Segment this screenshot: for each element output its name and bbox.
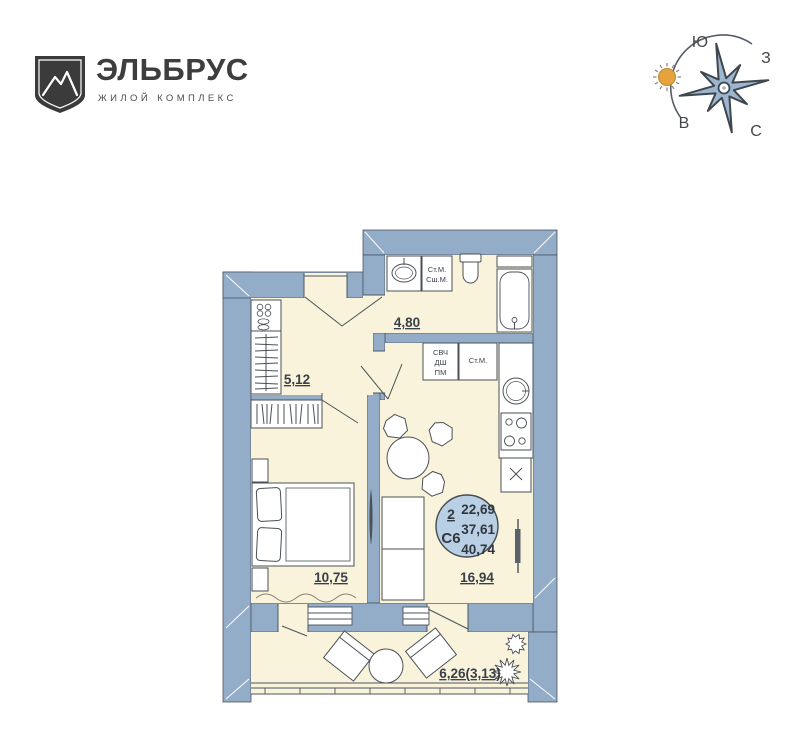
plan-canvas: Ю З В С (0, 0, 799, 752)
dining-table (387, 437, 429, 479)
area-label-bedroom: 10,75 (314, 570, 348, 585)
area-label-hall: 5,12 (284, 372, 310, 387)
shoe-cabinet (251, 300, 281, 331)
compass-label-east: В (679, 115, 690, 132)
area-label-bathroom: 4,80 (394, 315, 420, 330)
floor-plan-page: ЭЛЬБРУС ЖИЛОЙ КОМПЛЕКС Ю З В С (0, 0, 799, 752)
bed (252, 483, 354, 566)
compass-label-west: З (761, 50, 771, 67)
bedroom-balcony-door-opening (278, 604, 308, 632)
kitchen-sink (503, 378, 529, 404)
bath-shelf (497, 256, 532, 267)
bedroom-window (308, 607, 352, 625)
badge-unit: С6 (441, 530, 460, 547)
nightstand (252, 568, 268, 591)
bathroom-door-opening (363, 295, 385, 333)
oven-label: ДШ (435, 358, 447, 367)
kitchen-door-opening (373, 351, 385, 393)
entrance-opening (304, 273, 347, 298)
balcony-table (369, 649, 403, 683)
compass-label-north: С (750, 123, 762, 140)
living-window (403, 607, 429, 625)
bedroom-wardrobe (251, 400, 322, 428)
dryer-label: Сш.М. (426, 275, 448, 284)
microwave-label: СВЧ (433, 348, 448, 357)
compass-rose: Ю З В С (653, 34, 771, 140)
bedroom-door-opening (322, 393, 367, 400)
tall-cabinet (382, 497, 424, 600)
kitchen-washer-label: Ст.М. (469, 356, 487, 365)
living-balcony-door-opening (427, 604, 468, 632)
area-label-kitchen-living: 16,94 (460, 570, 494, 585)
stove (501, 413, 531, 450)
fridge-box (501, 458, 531, 492)
area-label-balcony: 6,26(3,13) (439, 666, 501, 681)
bathtub (497, 269, 532, 332)
compass-label-south: Ю (692, 34, 708, 51)
badge-apartment-area: 37,61 (461, 522, 495, 537)
badge-living-area: 22,69 (461, 502, 495, 517)
nightstand (252, 459, 268, 482)
apartment-badge: 2 С6 22,69 37,61 40,74 (436, 495, 498, 557)
badge-total-area: 40,74 (461, 542, 495, 557)
bathroom-sink (387, 256, 421, 291)
dishwasher-label: ПМ (435, 368, 447, 377)
sun-icon (653, 63, 681, 91)
hall-wardrobe (251, 331, 281, 394)
badge-rooms: 2 (447, 506, 455, 522)
washer-label: Ст.М. (428, 265, 446, 274)
